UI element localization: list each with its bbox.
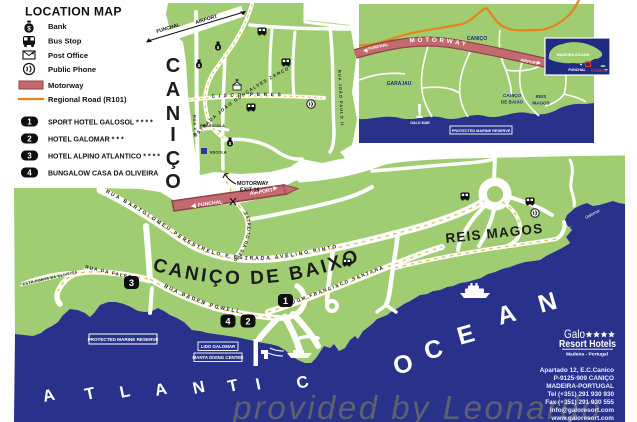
svg-text:Ç: Ç xyxy=(166,148,180,170)
svg-text:CANIÇO: CANIÇO xyxy=(467,36,487,42)
svg-text:MOTORWAY: MOTORWAY xyxy=(237,181,269,187)
svg-text:PROTECTED MARINE RESERVE: PROTECTED MARINE RESERVE xyxy=(88,337,159,342)
svg-text:MAGOS: MAGOS xyxy=(532,101,549,106)
svg-text:Bank: Bank xyxy=(48,22,67,31)
svg-text:O: O xyxy=(165,171,181,193)
svg-text:1: 1 xyxy=(283,296,288,306)
svg-text:2: 2 xyxy=(27,135,32,144)
svg-text:CANIÇO: CANIÇO xyxy=(503,93,522,98)
svg-text:P-9125-909 CANIÇO: P-9125-909 CANIÇO xyxy=(554,375,614,382)
svg-text:MADEIRA ISLAND: MADEIRA ISLAND xyxy=(557,53,590,57)
svg-text:Resort Hotels: Resort Hotels xyxy=(559,338,616,350)
svg-text:HOTEL GALOMAR * * *: HOTEL GALOMAR * * * xyxy=(48,137,124,144)
svg-text:FUNCHAL: FUNCHAL xyxy=(568,68,586,72)
svg-text:HOTEL ALPINO ATLANTICO * * * *: HOTEL ALPINO ATLANTICO * * * * xyxy=(48,154,160,161)
svg-text:3: 3 xyxy=(27,152,32,161)
svg-text:info@galoresort.com: info@galoresort.com xyxy=(550,407,614,414)
svg-text:Post Office: Post Office xyxy=(48,51,88,60)
svg-text:Public Phone: Public Phone xyxy=(48,65,96,74)
svg-text:N: N xyxy=(166,103,180,125)
svg-text:Motorway: Motorway xyxy=(48,81,84,90)
svg-text:LOCATION MAP: LOCATION MAP xyxy=(25,5,122,19)
svg-text:BUNGALOW CASA DA OLIVEIRA: BUNGALOW CASA DA OLIVEIRA xyxy=(48,171,158,178)
svg-text:REIS: REIS xyxy=(536,94,547,99)
svg-text:MADEIRA-PORTUGAL: MADEIRA-PORTUGAL xyxy=(546,383,614,390)
svg-text:3: 3 xyxy=(129,278,134,288)
svg-text:2: 2 xyxy=(245,317,250,327)
svg-text:PRE-ESCOLA: PRE-ESCOLA xyxy=(200,124,225,128)
svg-text:GALO MAR: GALO MAR xyxy=(410,121,430,125)
svg-text:C: C xyxy=(166,55,180,77)
svg-text:Apartado 12, E.C.Canico: Apartado 12, E.C.Canico xyxy=(540,367,614,374)
svg-text:ESCOLA: ESCOLA xyxy=(210,150,227,155)
svg-text:$: $ xyxy=(27,26,31,33)
svg-text:LIDO GALOMAR: LIDO GALOMAR xyxy=(201,344,236,349)
svg-text:A: A xyxy=(166,79,180,101)
svg-text:Madeira - Portugal: Madeira - Portugal xyxy=(566,352,608,358)
svg-text:SPORT HOTEL GALOSOL * * * *: SPORT HOTEL GALOSOL * * * * xyxy=(48,120,153,127)
svg-text:DE BAIXO: DE BAIXO xyxy=(501,100,524,105)
svg-text:EXIT 16: EXIT 16 xyxy=(240,188,259,194)
svg-text:Regional Road (R101): Regional Road (R101) xyxy=(48,95,127,104)
svg-text:Fax (+351) 291 930 555: Fax (+351) 291 930 555 xyxy=(545,399,614,406)
svg-text:GARAJAU: GARAJAU xyxy=(387,81,412,87)
svg-text:Bus Stop: Bus Stop xyxy=(48,37,82,46)
svg-text:Tel (+351) 291 930 930: Tel (+351) 291 930 930 xyxy=(548,391,615,398)
svg-text:www.galoresort.com: www.galoresort.com xyxy=(550,415,614,422)
svg-text:MANTA DIVING CENTER: MANTA DIVING CENTER xyxy=(193,355,245,360)
svg-text:4: 4 xyxy=(225,317,230,327)
svg-text:4: 4 xyxy=(27,169,32,178)
svg-text:1: 1 xyxy=(27,118,32,127)
svg-text:RUA V.E.: RUA V.E. xyxy=(192,115,198,138)
svg-text:I: I xyxy=(170,124,176,146)
svg-text:PROTECTED MARINE RESERVE: PROTECTED MARINE RESERVE xyxy=(452,129,511,133)
